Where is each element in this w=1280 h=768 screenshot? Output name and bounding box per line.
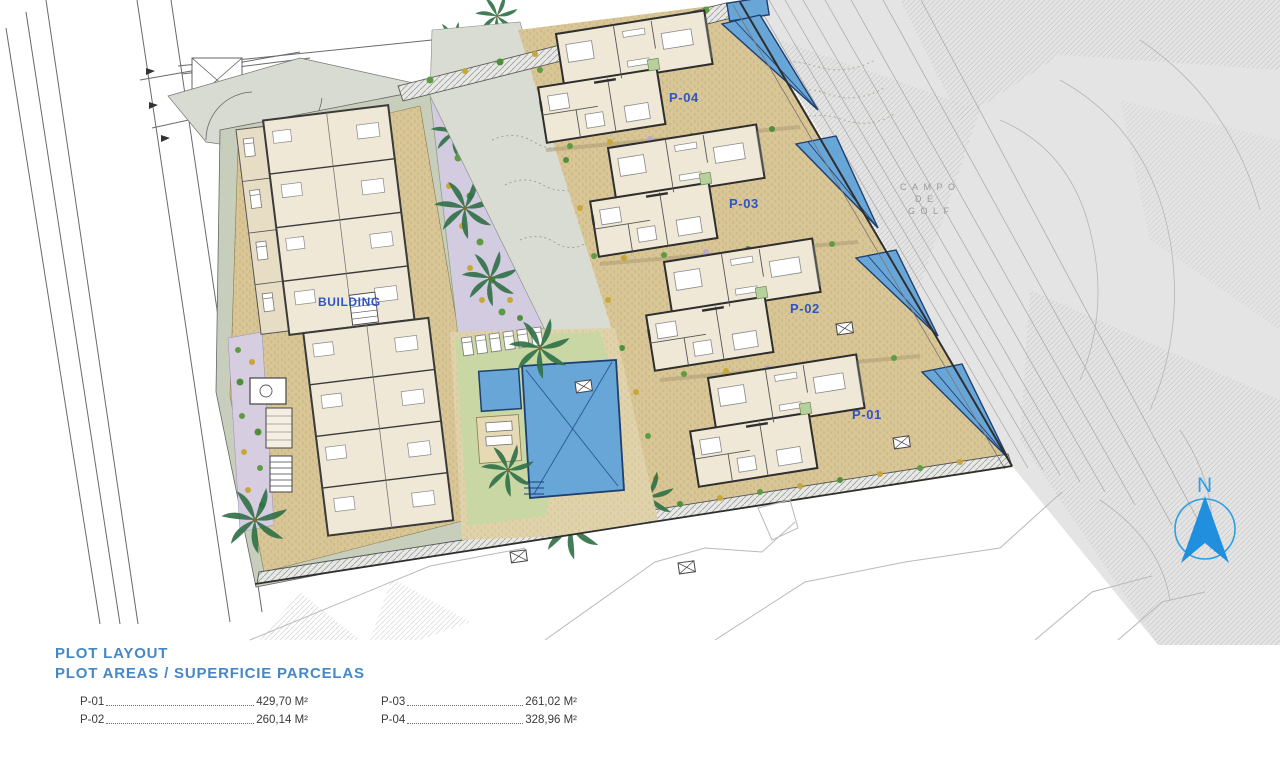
road-direction-arrows xyxy=(146,68,170,142)
legend-title: PLOT LAYOUT xyxy=(55,644,755,664)
legend-subtitle: PLOT AREAS / SUPERFICIE PARCELAS xyxy=(55,664,755,684)
plot-label-p04: P-04 xyxy=(669,90,699,105)
legend-entry-value: 261,02 M² xyxy=(525,695,577,709)
legend-entry-label: P-02 xyxy=(80,713,104,727)
legend-entry-value: 429,70 M² xyxy=(256,695,308,709)
plot-label-p01: P-01 xyxy=(852,407,882,422)
plot-label-p02: P-02 xyxy=(790,301,820,316)
golf-label-line1: CAMPO xyxy=(900,182,961,192)
dotted-leader xyxy=(407,704,523,706)
legend-entry-p01: P-01 429,70 M² xyxy=(80,695,308,709)
legend-entry-label: P-04 xyxy=(381,713,405,727)
building-label: BUILDING xyxy=(318,295,381,309)
dotted-leader xyxy=(106,722,254,724)
plot-label-p03: P-03 xyxy=(729,196,759,211)
small-pool xyxy=(479,369,522,412)
site-plan-drawing: CAMPO DE GOLF xyxy=(0,0,1280,645)
legend: PLOT LAYOUT PLOT AREAS / SUPERFICIE PARC… xyxy=(55,644,755,727)
legend-entry-value: 328,96 M² xyxy=(525,713,577,727)
dotted-leader xyxy=(106,704,254,706)
legend-entry-label: P-01 xyxy=(80,695,104,709)
dotted-leader xyxy=(407,722,523,724)
legend-entry-p03: P-03 261,02 M² xyxy=(381,695,577,709)
site-plan-page: CAMPO DE GOLF xyxy=(0,0,1280,768)
main-pool xyxy=(522,360,624,498)
golf-label-line2: DE xyxy=(915,194,939,204)
legend-entry-p02: P-02 260,14 M² xyxy=(80,713,308,727)
legend-entry-p04: P-04 328,96 M² xyxy=(381,713,577,727)
golf-label-line3: GOLF xyxy=(908,206,955,216)
north-label: N xyxy=(1197,474,1212,497)
legend-entry-label: P-03 xyxy=(381,695,405,709)
legend-entry-value: 260,14 M² xyxy=(256,713,308,727)
